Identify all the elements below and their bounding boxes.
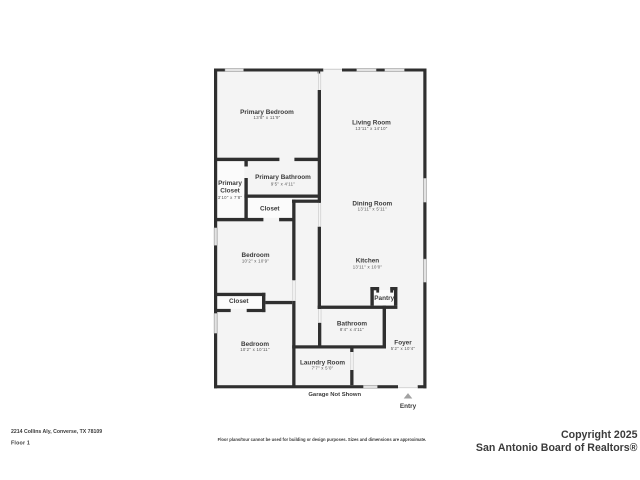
svg-text:Closet: Closet <box>229 298 249 305</box>
svg-text:Kitchen: Kitchen <box>356 258 380 265</box>
svg-text:Floor plans/tour cannot be use: Floor plans/tour cannot be used for buil… <box>218 437 427 442</box>
svg-text:Garage Not Shown: Garage Not Shown <box>308 392 361 398</box>
svg-text:Pantry: Pantry <box>374 295 394 302</box>
svg-text:10'2" x 10'11": 10'2" x 10'11" <box>240 347 270 352</box>
svg-text:5'2" x 10'4": 5'2" x 10'4" <box>391 346 416 351</box>
svg-text:13'8" x 11'9": 13'8" x 11'9" <box>254 115 281 120</box>
svg-text:2214 Collins Aly, Converse, TX: 2214 Collins Aly, Converse, TX 78109 <box>11 429 102 435</box>
svg-text:13'11" x 14'10": 13'11" x 14'10" <box>355 126 387 131</box>
svg-text:10'2" x 10'9": 10'2" x 10'9" <box>242 259 269 264</box>
svg-text:Copyright 2025: Copyright 2025 <box>561 429 638 441</box>
svg-text:Closet: Closet <box>220 188 240 195</box>
svg-text:Closet: Closet <box>260 206 280 213</box>
svg-text:Floor 1: Floor 1 <box>11 440 30 446</box>
svg-text:Primary Bathroom: Primary Bathroom <box>255 174 311 181</box>
svg-text:8'4" x 4'11": 8'4" x 4'11" <box>340 327 364 332</box>
svg-text:13'11" x 5'11": 13'11" x 5'11" <box>358 207 387 212</box>
svg-text:Primary: Primary <box>218 180 242 187</box>
svg-text:9'5" x 4'11": 9'5" x 4'11" <box>271 182 295 187</box>
svg-text:13'11" x 10'0": 13'11" x 10'0" <box>353 265 383 270</box>
svg-text:3'10" x 7'8": 3'10" x 7'8" <box>218 195 243 200</box>
svg-text:7'7" x 5'0": 7'7" x 5'0" <box>312 366 334 371</box>
svg-text:San Antonio Board of Realtors®: San Antonio Board of Realtors® <box>476 442 638 454</box>
svg-text:Entry: Entry <box>400 403 417 410</box>
